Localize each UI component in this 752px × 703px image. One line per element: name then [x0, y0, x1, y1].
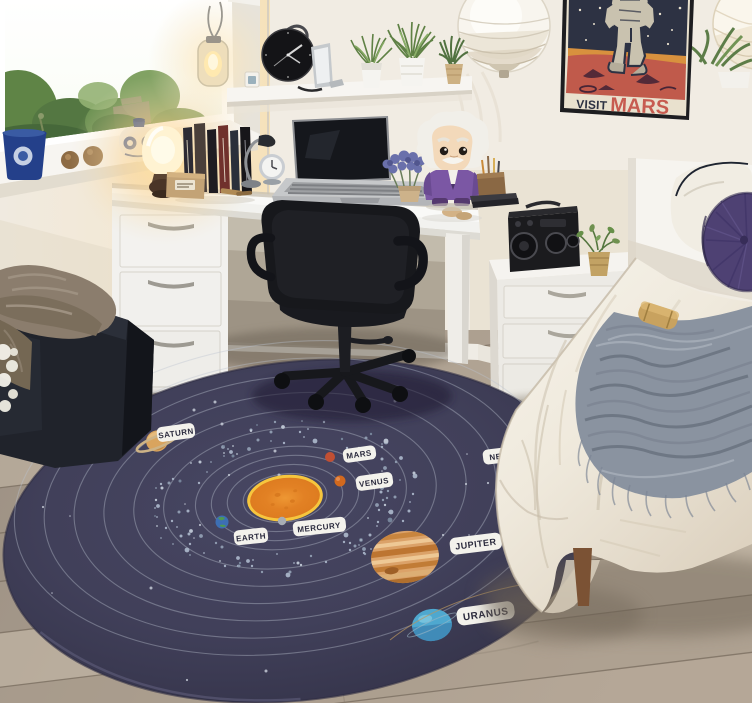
svg-text:MARS: MARS: [610, 94, 670, 119]
svg-text:VISIT: VISIT: [576, 97, 608, 113]
